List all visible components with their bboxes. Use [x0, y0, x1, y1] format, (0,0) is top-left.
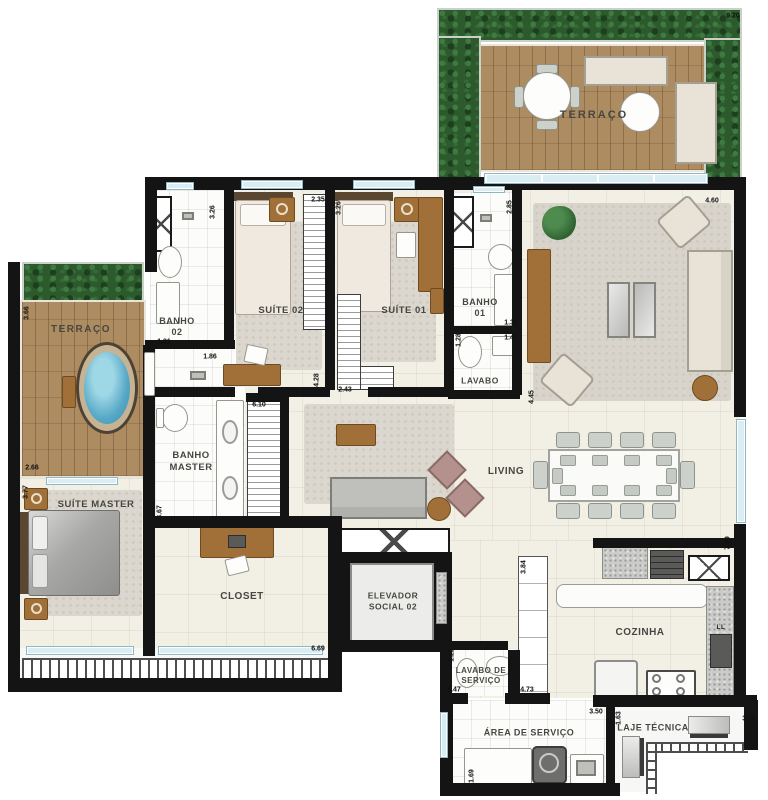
dimension: 6.10 — [252, 402, 266, 409]
dimension: 2.43 — [338, 387, 352, 394]
dimension: 1.41 — [504, 335, 518, 342]
wardrobe-master-closet — [247, 398, 281, 518]
fridge — [594, 660, 638, 698]
bath-fixture — [190, 371, 206, 380]
dimension: 3.84 — [521, 560, 528, 574]
room-label-lavabo: LAVABO — [461, 376, 499, 387]
coffee-table — [607, 282, 630, 338]
dining-chair — [556, 503, 580, 519]
dimension: 4.73 — [520, 687, 534, 694]
toilet-banho-master — [162, 404, 188, 432]
round-side-table — [692, 375, 718, 401]
wall — [593, 538, 745, 548]
room-label-suite-master: SUÍTE MASTER — [58, 499, 135, 511]
wall — [8, 476, 20, 688]
window — [26, 646, 134, 655]
shower-head — [182, 212, 194, 220]
dimension: 3.77 — [23, 485, 30, 499]
dimension: 1.47 — [447, 687, 461, 694]
dining-chair — [556, 432, 580, 448]
wall — [512, 190, 522, 395]
place-setting — [560, 455, 576, 466]
laptop — [228, 535, 246, 548]
room-label-ll: LL — [717, 624, 726, 632]
wall — [505, 693, 550, 704]
laje-railing — [652, 742, 748, 753]
nightstand-lamp — [31, 493, 42, 504]
burner — [652, 674, 661, 683]
nightstand-lamp — [31, 603, 42, 614]
wall — [280, 396, 289, 522]
window — [241, 180, 303, 189]
terrace-sofa — [584, 56, 668, 86]
dimension: 6.69 — [311, 646, 325, 653]
ac-condenser — [688, 716, 730, 734]
room-label-terraco-left: TERRAÇO — [51, 324, 111, 337]
room-label-lavabo-servico: LAVABO DE SERVIÇO — [456, 666, 506, 686]
window — [736, 419, 746, 523]
room-label-banho-master: BANHO MASTER — [169, 450, 212, 474]
burner — [676, 674, 685, 683]
room-label-terraco-top: TERRAÇO — [560, 109, 628, 123]
jacuzzi-tray — [62, 376, 76, 408]
dimension: 2.35 — [311, 197, 325, 204]
dining-chair — [588, 503, 612, 519]
wall — [224, 190, 234, 348]
wall — [734, 545, 746, 707]
dimension: 3.26 — [210, 205, 217, 219]
dimension: 4.45 — [529, 390, 536, 404]
room-label-banho02: BANHO 02 — [159, 316, 195, 339]
dining-chair — [652, 503, 676, 519]
dimension: 1.86 — [203, 354, 217, 361]
sink — [222, 420, 238, 444]
place-setting — [560, 485, 576, 496]
wall — [734, 177, 746, 417]
dining-chair — [588, 432, 612, 448]
place-setting — [666, 468, 677, 484]
room-label-living: LIVING — [488, 466, 524, 479]
place-setting — [592, 485, 608, 496]
wall — [444, 190, 454, 395]
laje-railing — [646, 742, 657, 794]
place-setting — [592, 455, 608, 466]
dimension: 7.69 — [725, 536, 732, 550]
dimension: 2.66 — [25, 465, 39, 472]
ac-condenser-base — [690, 734, 728, 738]
wall — [8, 678, 342, 692]
dimension: 1.63 — [616, 711, 623, 725]
window — [166, 182, 194, 190]
window — [353, 180, 415, 189]
shower-banho01 — [452, 196, 474, 248]
room-label-suite01: SUÍTE 01 — [381, 305, 426, 317]
kitchen-island — [556, 584, 708, 608]
window — [440, 712, 448, 758]
wall — [145, 177, 157, 272]
dimension: 3.50 — [589, 709, 603, 716]
sideboard-living — [527, 249, 551, 363]
wall — [145, 516, 335, 528]
elevator-door — [436, 572, 447, 624]
place-setting — [552, 468, 563, 484]
room-label-laje-tecnica: LAJE TÉCNICA — [617, 722, 689, 733]
sink — [222, 476, 238, 500]
room-label-banho01: BANHO 01 — [462, 297, 498, 320]
wall — [8, 262, 20, 482]
duct-shaft — [338, 528, 450, 555]
terrace-chair — [536, 120, 558, 130]
jacuzzi-water — [84, 352, 130, 424]
wall — [440, 783, 620, 796]
kitchen-sink — [710, 634, 732, 668]
dimension: 1.31 — [157, 339, 171, 346]
hedge-terrace-left — [22, 262, 144, 302]
wall — [440, 693, 468, 704]
toilet-banho01 — [488, 244, 514, 270]
duct-shaft-kitchen — [688, 555, 730, 581]
bed-master-pillow — [32, 554, 48, 588]
hedge-terrace-top-west — [437, 36, 481, 182]
floor-plan: TERRAÇO TERRAÇO BANHO 02 SUÍTE 02 SUÍTE … — [0, 0, 768, 800]
place-setting — [656, 485, 672, 496]
chair-suite01 — [396, 232, 416, 258]
bedside-lamp — [276, 203, 288, 215]
dining-chair — [620, 503, 644, 519]
dimension: 3.36 — [742, 716, 756, 723]
vanity-banho-master — [216, 400, 244, 518]
room-label-suite02: SUÍTE 02 — [258, 305, 303, 317]
dining-chair — [620, 432, 644, 448]
coffee-table — [633, 282, 656, 338]
wall — [145, 387, 235, 397]
bed-suite01-pillow — [342, 204, 386, 226]
bedside-lamp — [401, 203, 413, 215]
dining-chair — [652, 432, 676, 448]
wall — [744, 700, 758, 750]
terrace-sliding-door — [484, 173, 708, 184]
shower-head — [480, 214, 492, 222]
wall — [448, 390, 520, 399]
wall — [328, 516, 342, 648]
wall — [325, 190, 335, 390]
room-label-elevador: ELEVADOR SOCIAL 02 — [368, 590, 419, 611]
dimension: 9.20 — [726, 13, 740, 20]
desk-suite01 — [418, 197, 443, 292]
wall — [606, 706, 615, 786]
sofa-hall — [330, 477, 427, 519]
kitchen-counter-top — [602, 547, 648, 579]
place-setting — [624, 455, 640, 466]
place-setting — [624, 485, 640, 496]
wardrobe-suite02 — [303, 194, 327, 330]
coffee-table-hall — [336, 424, 376, 446]
terrace-lounge-chair — [675, 82, 717, 164]
ac-condenser-base — [640, 738, 644, 776]
room-label-area-servico: ÁREA DE SERVIÇO — [484, 727, 575, 738]
oven-microwave — [650, 550, 684, 579]
wall — [593, 695, 757, 707]
pantry-cabinets — [518, 556, 548, 696]
wall — [328, 640, 452, 652]
window — [473, 186, 505, 193]
room-label-closet: CLOSET — [220, 591, 264, 604]
place-setting — [656, 455, 672, 466]
hedge-terrace-top-north — [437, 8, 742, 42]
dimension: 3.67 — [157, 505, 164, 519]
terrace-chair — [570, 86, 580, 108]
round-side-table — [427, 497, 451, 521]
wardrobe-suite01 — [337, 294, 361, 390]
bed-master-pillow — [32, 516, 48, 550]
dimension: 1.69 — [469, 769, 476, 783]
desk-suite01-return — [430, 288, 444, 314]
ac-condenser — [622, 736, 640, 778]
window — [158, 646, 323, 655]
toilet-banho02 — [158, 246, 182, 278]
washer-lid — [539, 753, 559, 773]
dimension: 1.38 — [504, 320, 518, 327]
terrace-door — [144, 352, 155, 396]
dimension: 4.28 — [314, 373, 321, 387]
dimension: 4.60 — [705, 198, 719, 205]
desk-suite02 — [223, 364, 281, 386]
toilet-tank — [156, 408, 164, 428]
wall — [368, 387, 448, 397]
laundry-sink-basin — [576, 760, 596, 776]
dining-chair — [680, 461, 695, 489]
sofa-living — [687, 250, 733, 372]
dining-chair — [533, 461, 548, 489]
room-label-cozinha: COZINHA — [615, 627, 664, 640]
dimension: 1.28 — [456, 333, 463, 347]
dimension: 3.66 — [24, 306, 31, 320]
window — [46, 477, 118, 485]
dimension: 3.26 — [336, 201, 343, 215]
dimension: 1.22 — [449, 648, 456, 662]
dimension: 2.85 — [507, 200, 514, 214]
